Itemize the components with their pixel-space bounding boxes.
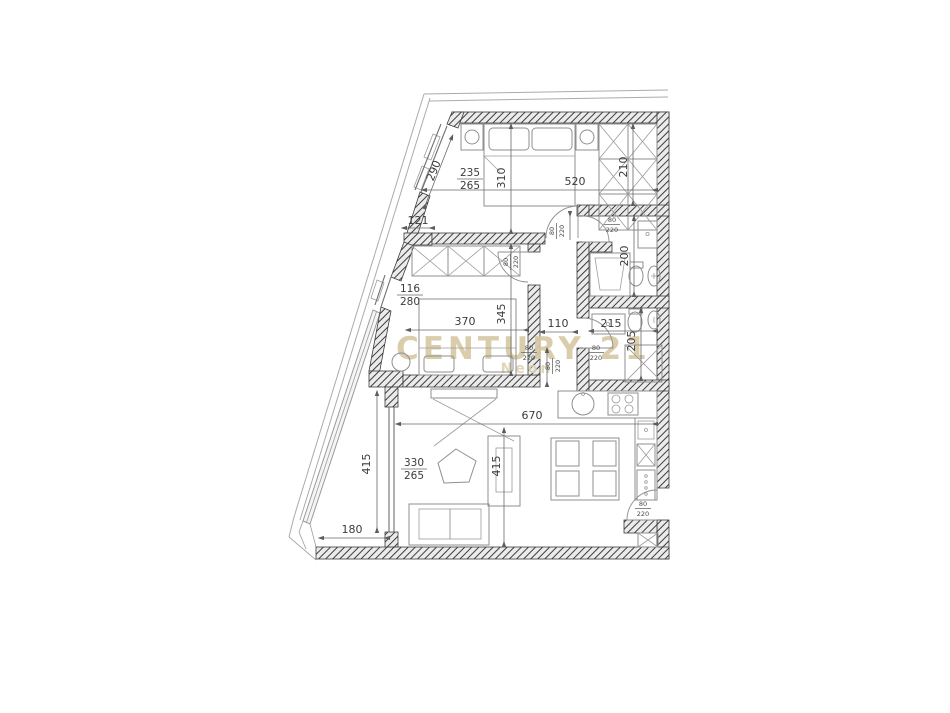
toilet-icon: [628, 309, 642, 332]
svg-text:220: 220: [554, 360, 562, 372]
dim-110: 110: [548, 317, 569, 330]
dim-290: 290: [424, 159, 444, 183]
door-label: 80 220: [635, 500, 651, 518]
cooktop-icon: [608, 393, 638, 415]
svg-text:220: 220: [558, 225, 566, 237]
washbasin-icon: [638, 221, 657, 248]
dim-310: 310: [495, 168, 508, 189]
svg-text:80: 80: [525, 344, 533, 352]
door-label: 80 220: [548, 223, 566, 239]
floorplan-drawing: CENTURY 21 Neon: [0, 0, 950, 713]
fridge-icon: [637, 444, 655, 466]
chair: [556, 441, 579, 466]
svg-text:265: 265: [460, 180, 480, 192]
dim-235-265: 235 265: [457, 167, 483, 192]
svg-text:265: 265: [404, 470, 424, 482]
floorplan-page: CENTURY 21 Neon: [0, 0, 950, 713]
dim-215: 215: [601, 317, 622, 330]
dim-520: 520: [565, 175, 586, 188]
entry-cabinet-icon: [638, 533, 658, 547]
dim-116-280: 116 280: [397, 283, 423, 308]
dim-345: 345: [495, 304, 508, 325]
pillow: [532, 128, 572, 150]
pillow: [489, 128, 529, 150]
svg-text:220: 220: [512, 256, 520, 268]
svg-text:80: 80: [608, 216, 616, 224]
svg-text:330: 330: [404, 457, 424, 469]
dim-330-265: 330 265: [401, 457, 427, 482]
svg-text:220: 220: [637, 510, 649, 518]
svg-text:80: 80: [544, 362, 552, 370]
sofa: [409, 504, 489, 545]
dim-121: 121: [408, 214, 429, 227]
svg-text:220: 220: [523, 354, 535, 362]
dim-180: 180: [342, 523, 363, 536]
lamp-icon: [580, 130, 594, 144]
svg-text:80: 80: [548, 227, 556, 235]
lamp-icon: [465, 130, 479, 144]
kitchen-sink-icon: [572, 393, 594, 415]
svg-text:116: 116: [400, 283, 420, 295]
chair: [593, 471, 616, 496]
svg-text:80: 80: [592, 344, 600, 352]
dim-670: 670: [522, 409, 543, 422]
svg-text:220: 220: [606, 226, 618, 234]
coffee-table: [438, 449, 476, 483]
svg-text:220: 220: [590, 354, 602, 362]
svg-text:235: 235: [460, 167, 480, 179]
svg-text:80: 80: [502, 258, 510, 266]
window-330: [389, 407, 394, 532]
svg-text:280: 280: [400, 296, 420, 308]
chair: [556, 471, 579, 496]
dim-210: 210: [617, 157, 630, 178]
dining-table: [551, 438, 619, 500]
toilet-icon: [629, 262, 643, 286]
tv-unit: [431, 389, 514, 446]
svg-text:80: 80: [639, 500, 647, 508]
dim-415-balcony: 415: [360, 454, 373, 475]
nightstand: [461, 124, 483, 150]
nightstand: [576, 124, 598, 150]
door-label: 80 220: [604, 216, 620, 234]
dim-370: 370: [455, 315, 476, 328]
chair: [593, 441, 616, 466]
dim-415-living: 415: [490, 456, 503, 477]
dim-200: 200: [618, 246, 631, 267]
dim-205: 205: [625, 331, 638, 352]
